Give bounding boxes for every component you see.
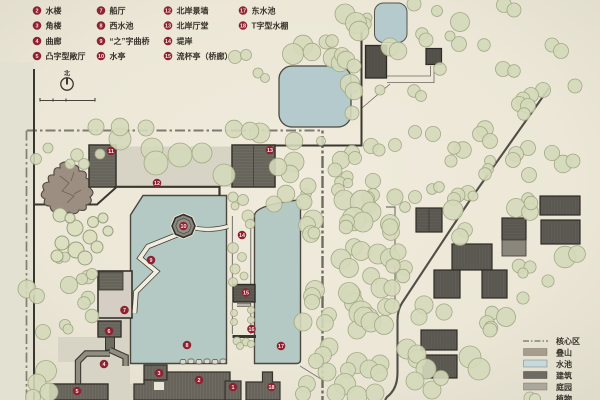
- svg-text:12: 12: [165, 9, 171, 15]
- svg-text:9: 9: [150, 258, 153, 264]
- svg-text:北岸厅堂: 北岸厅堂: [177, 21, 209, 31]
- svg-text:15: 15: [243, 291, 249, 297]
- svg-text:11: 11: [108, 149, 114, 155]
- svg-text:14: 14: [239, 233, 245, 239]
- svg-text:4: 4: [36, 39, 39, 45]
- svg-text:流杯亭（桥廊）: 流杯亭（桥廊）: [177, 51, 233, 61]
- svg-text:7: 7: [123, 308, 126, 314]
- svg-text:建筑: 建筑: [555, 371, 572, 381]
- svg-text:庭园: 庭园: [556, 382, 572, 392]
- svg-text:T字型水棚: T字型水棚: [252, 21, 289, 31]
- svg-text:13: 13: [267, 148, 273, 154]
- svg-text:北岸景墙: 北岸景墙: [177, 6, 209, 16]
- svg-text:16: 16: [249, 327, 255, 333]
- svg-text:17: 17: [278, 344, 284, 350]
- svg-text:10: 10: [181, 224, 187, 230]
- svg-text:叠山: 叠山: [556, 348, 572, 358]
- svg-text:2: 2: [198, 378, 201, 384]
- svg-text:“之”字曲桥: “之”字曲桥: [110, 36, 151, 46]
- svg-text:凸字型敞厅: 凸字型敞厅: [46, 51, 86, 61]
- svg-text:曲廊: 曲廊: [46, 36, 62, 46]
- svg-text:水楼: 水楼: [45, 6, 62, 16]
- svg-text:北: 北: [64, 70, 70, 78]
- svg-text:4: 4: [103, 362, 106, 368]
- svg-text:船厅: 船厅: [110, 6, 126, 16]
- svg-text:7: 7: [100, 9, 103, 15]
- svg-text:堤岸: 堤岸: [177, 36, 193, 46]
- svg-text:12: 12: [154, 181, 160, 187]
- svg-text:17: 17: [240, 9, 246, 15]
- svg-text:植物: 植物: [555, 394, 572, 400]
- svg-text:10: 10: [98, 54, 104, 60]
- svg-text:9: 9: [100, 39, 103, 45]
- svg-text:14: 14: [165, 39, 171, 45]
- svg-text:5: 5: [76, 389, 79, 395]
- svg-text:角楼: 角楼: [46, 21, 62, 31]
- svg-text:1: 1: [232, 385, 235, 391]
- svg-text:15: 15: [165, 54, 171, 60]
- svg-text:8: 8: [186, 343, 189, 349]
- svg-text:5: 5: [36, 54, 39, 60]
- svg-text:东水池: 东水池: [252, 6, 276, 16]
- svg-text:西水池: 西水池: [110, 21, 134, 31]
- svg-text:13: 13: [165, 24, 171, 30]
- svg-text:18: 18: [269, 385, 275, 391]
- svg-text:8: 8: [100, 24, 103, 30]
- svg-text:3: 3: [158, 371, 161, 377]
- svg-text:3: 3: [36, 24, 39, 30]
- svg-text:18: 18: [240, 24, 246, 30]
- svg-text:核心区: 核心区: [556, 336, 580, 346]
- svg-text:6: 6: [108, 329, 111, 335]
- svg-text:水池: 水池: [555, 359, 572, 369]
- svg-text:2: 2: [36, 9, 39, 15]
- svg-text:水亭: 水亭: [109, 51, 126, 61]
